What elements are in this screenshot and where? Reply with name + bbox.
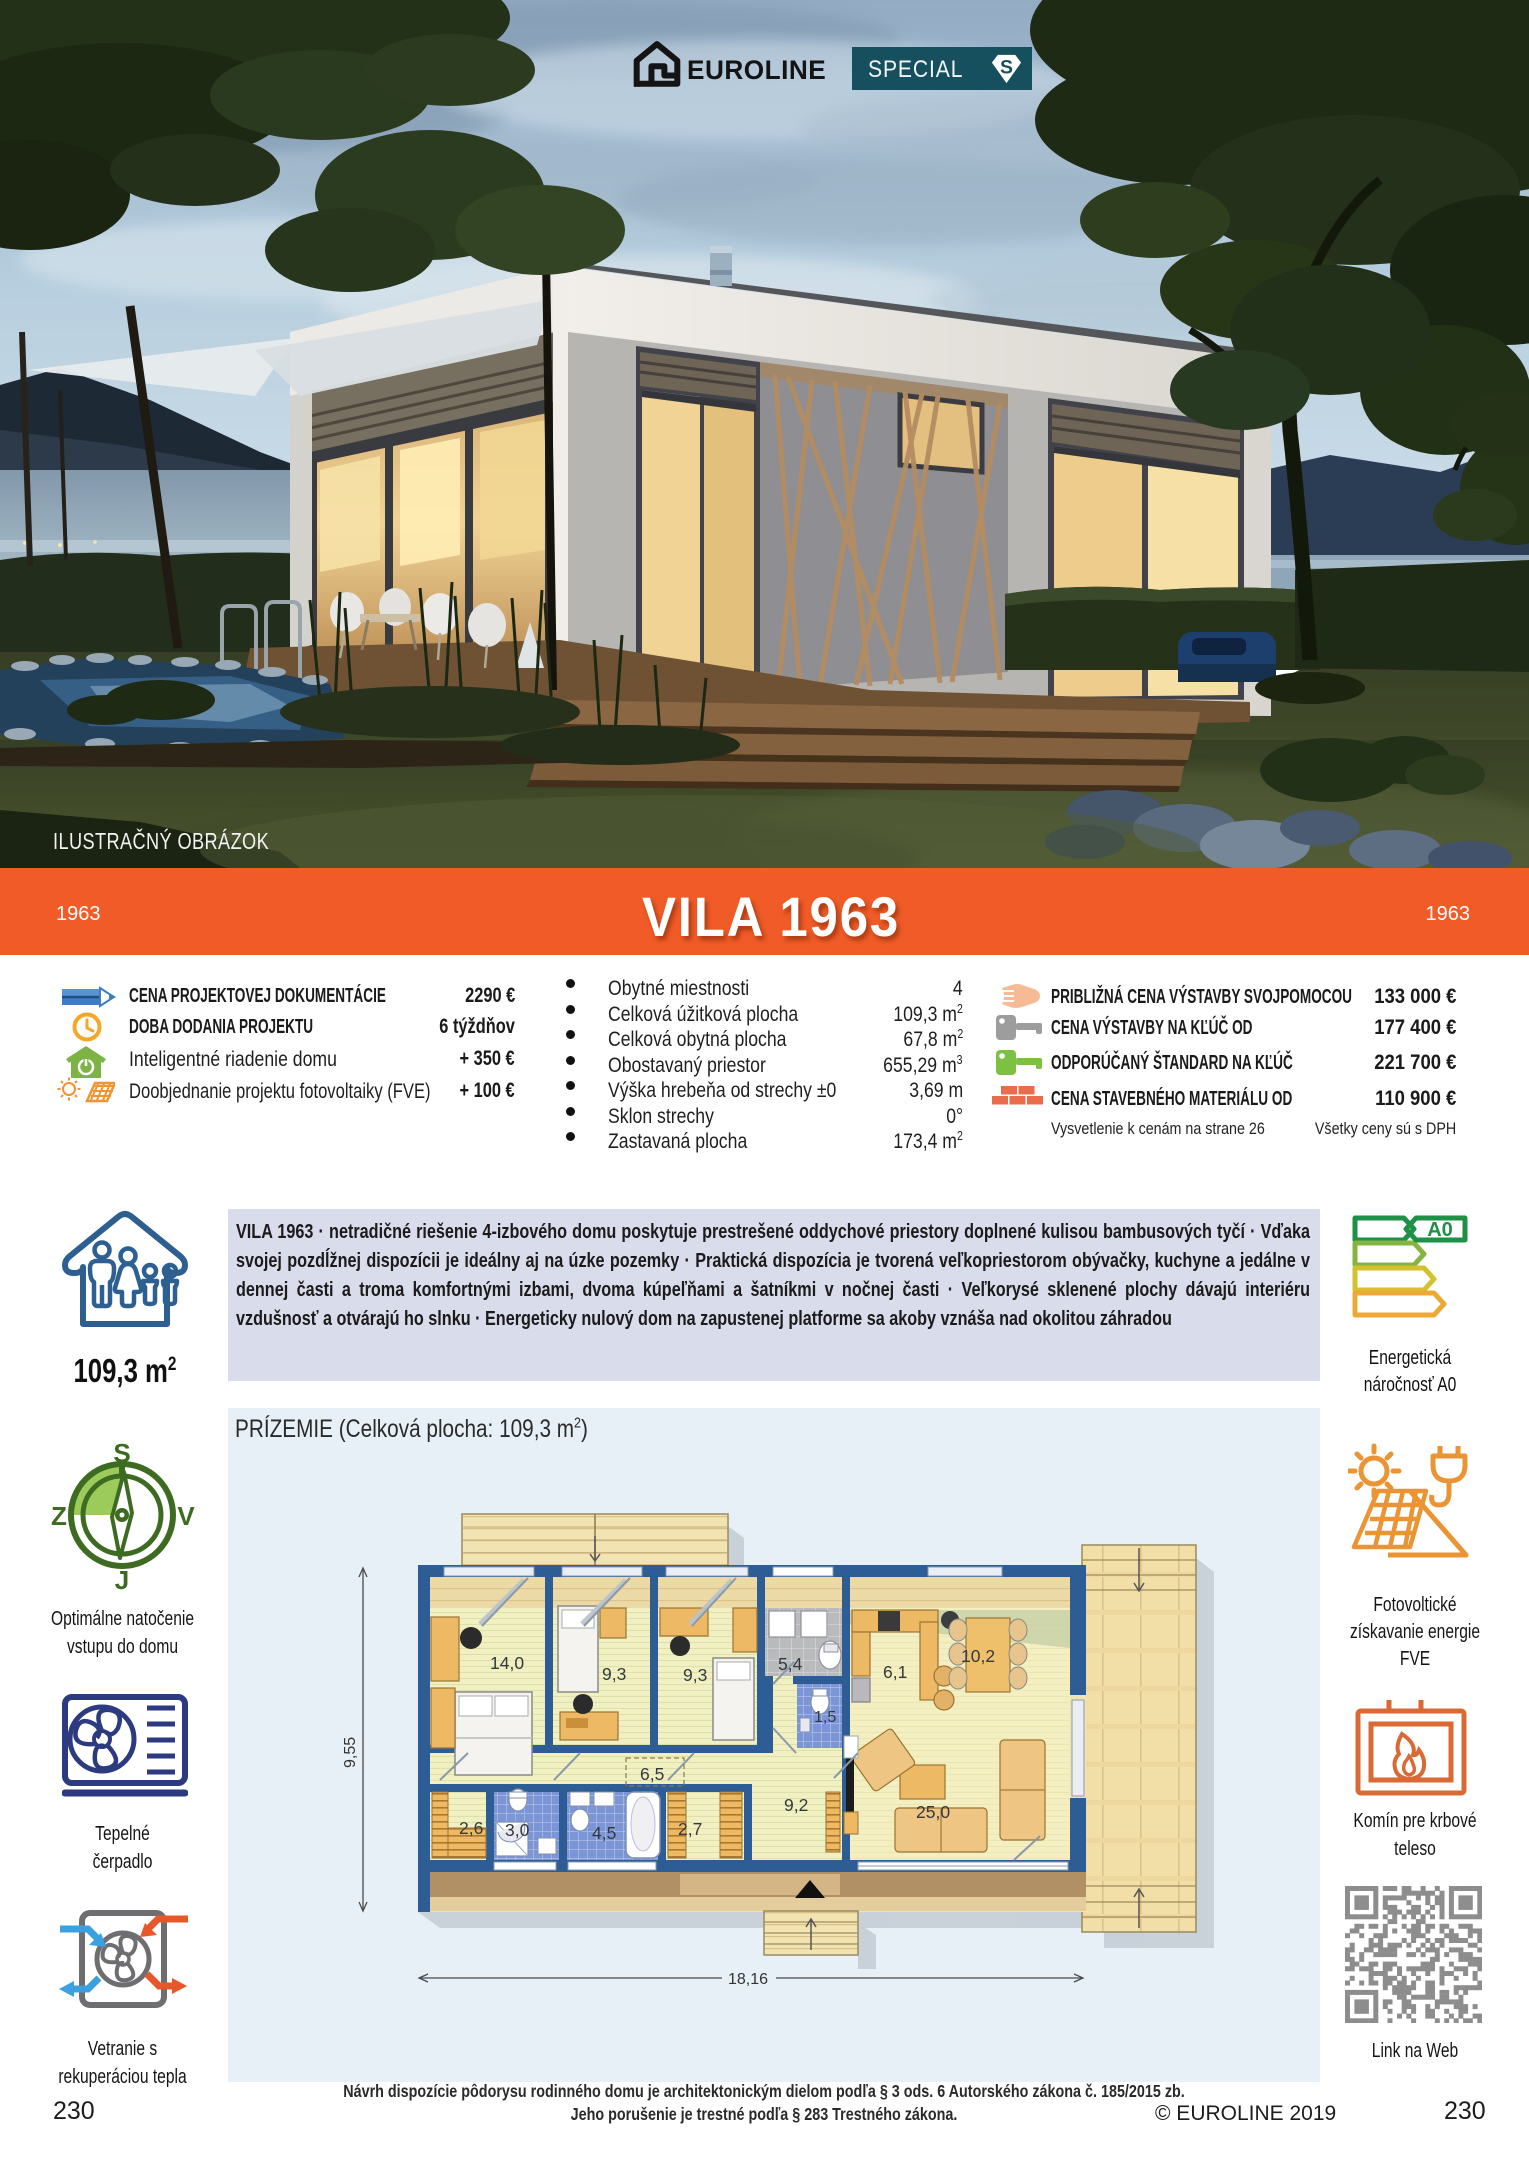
svg-text:1,5: 1,5 bbox=[814, 1709, 836, 1726]
svg-text:10,2: 10,2 bbox=[961, 1646, 995, 1666]
svg-text:6,1: 6,1 bbox=[883, 1662, 907, 1682]
svg-text:V: V bbox=[177, 1501, 195, 1531]
svg-text:2,6: 2,6 bbox=[459, 1818, 483, 1838]
svg-text:Z: Z bbox=[51, 1501, 67, 1531]
svg-text:14,0: 14,0 bbox=[490, 1653, 524, 1673]
svg-text:9,3: 9,3 bbox=[683, 1665, 707, 1685]
svg-text:25,0: 25,0 bbox=[916, 1802, 950, 1822]
svg-text:A0: A0 bbox=[1427, 1219, 1453, 1241]
svg-text:9,2: 9,2 bbox=[784, 1795, 808, 1815]
svg-text:9,3: 9,3 bbox=[602, 1664, 626, 1684]
svg-text:6,5: 6,5 bbox=[640, 1764, 664, 1784]
svg-text:18,16: 18,16 bbox=[728, 1971, 768, 1988]
svg-text:4,5: 4,5 bbox=[592, 1823, 616, 1843]
svg-text:S: S bbox=[1000, 56, 1013, 78]
svg-text:2,7: 2,7 bbox=[678, 1819, 702, 1839]
svg-text:3,0: 3,0 bbox=[505, 1820, 530, 1840]
svg-text:9,55: 9,55 bbox=[342, 1737, 359, 1768]
svg-text:5,4: 5,4 bbox=[778, 1654, 803, 1674]
